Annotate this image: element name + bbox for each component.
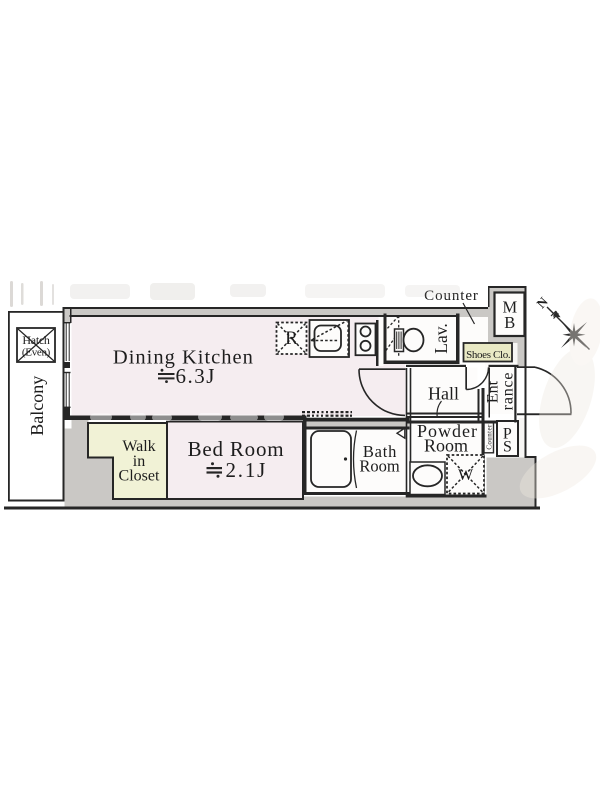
svg-text:Room: Room [359,457,400,476]
svg-text:R: R [285,328,298,349]
svg-text:W: W [458,467,474,484]
svg-text:Hall: Hall [428,384,459,404]
svg-text:6.3J: 6.3J [176,364,216,388]
svg-text:Lav.: Lav. [431,323,451,353]
svg-text:Shoes Clo.: Shoes Clo. [466,349,511,361]
svg-text:rance: rance [500,372,517,411]
svg-text:S: S [503,439,512,456]
svg-text:Balcony: Balcony [27,376,47,436]
svg-text:Counter: Counter [485,424,493,450]
svg-text:Closet: Closet [119,468,160,485]
svg-text:Hatch: Hatch [22,333,49,347]
svg-text:Room: Room [424,436,468,456]
svg-text:B: B [504,313,515,332]
svg-text:(Even): (Even) [22,347,51,359]
svg-text:2.1J: 2.1J [226,458,268,482]
